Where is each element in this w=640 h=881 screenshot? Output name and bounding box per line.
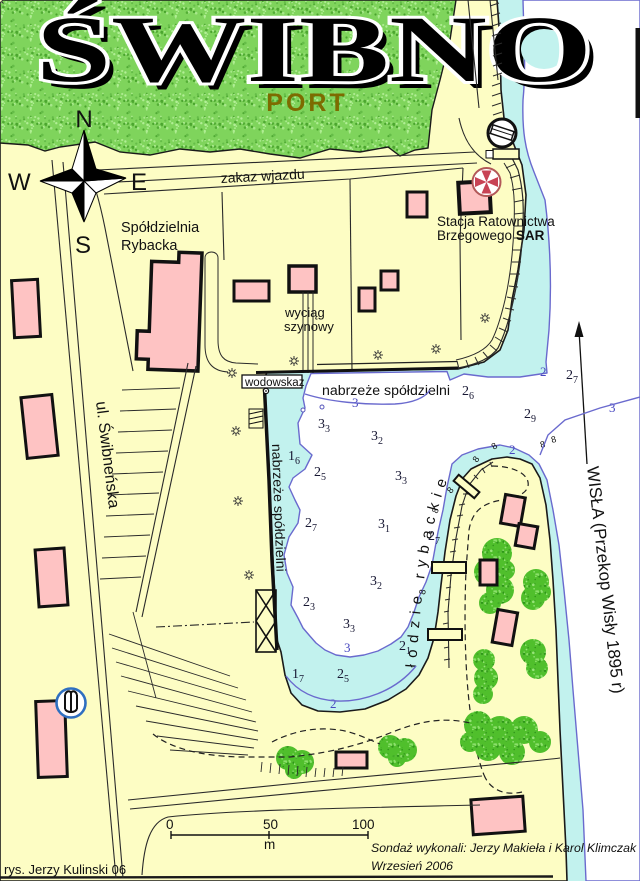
svg-text:3: 3 <box>609 400 616 415</box>
svg-text:50: 50 <box>263 817 278 832</box>
svg-text:szynowy: szynowy <box>284 319 334 334</box>
svg-text:Sondaż wykonali: Jerzy Makieła: Sondaż wykonali: Jerzy Makieła i Karol K… <box>371 841 637 855</box>
svg-text:3: 3 <box>344 640 351 655</box>
svg-text:Wrzesień 2006: Wrzesień 2006 <box>371 859 453 873</box>
svg-text:Rybacka: Rybacka <box>121 238 178 254</box>
svg-text:100: 100 <box>352 817 375 832</box>
svg-text:m: m <box>264 837 275 852</box>
svg-text:Stacja Ratownictwa: Stacja Ratownictwa <box>437 214 555 229</box>
svg-text:Brzegowego SAR: Brzegowego SAR <box>437 228 545 243</box>
svg-text:wodowskaz: wodowskaz <box>244 377 305 389</box>
svg-text:S: S <box>75 232 91 259</box>
svg-text:N: N <box>75 106 92 133</box>
svg-text:2: 2 <box>509 442 516 457</box>
svg-text:ŚWIBNO: ŚWIBNO <box>36 0 592 102</box>
svg-text:W: W <box>8 169 31 196</box>
svg-text:2: 2 <box>540 364 547 379</box>
svg-text:0: 0 <box>166 817 174 832</box>
svg-text:rys. Jerzy Kulinski 06: rys. Jerzy Kulinski 06 <box>4 862 126 877</box>
svg-text:PORT: PORT <box>266 89 347 117</box>
svg-text:2: 2 <box>330 696 337 711</box>
svg-text:Spółdzielnia: Spółdzielnia <box>121 220 200 236</box>
svg-text:E: E <box>131 169 147 196</box>
svg-text:wyciąg: wyciąg <box>284 305 325 320</box>
svg-text:nabrzeże spółdzielni: nabrzeże spółdzielni <box>322 383 450 398</box>
